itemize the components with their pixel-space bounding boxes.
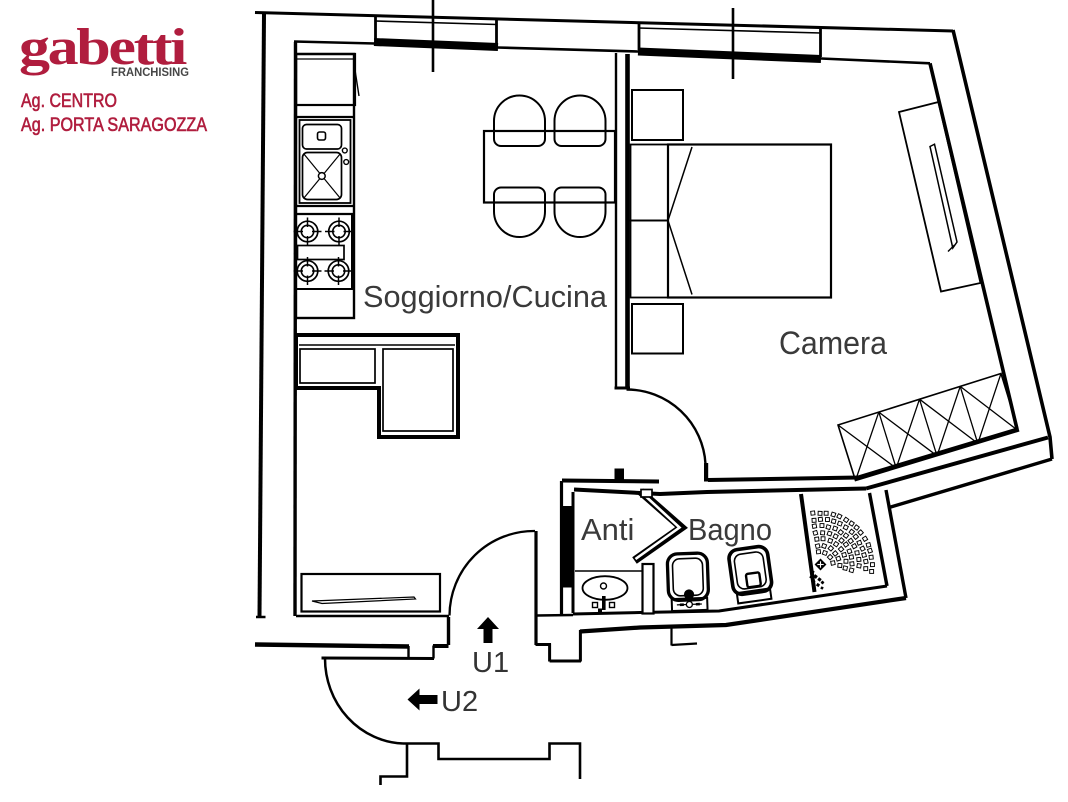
svg-text:U2: U2 [441, 686, 478, 718]
svg-text:Bagno: Bagno [688, 512, 772, 547]
svg-text:Ag. PORTA SARAGOZZA: Ag. PORTA SARAGOZZA [21, 115, 207, 136]
svg-text:Ag. CENTRO: Ag. CENTRO [21, 91, 117, 112]
svg-text:Anti: Anti [581, 512, 634, 547]
svg-text:Camera: Camera [779, 325, 887, 361]
svg-text:Soggiorno/Cucina: Soggiorno/Cucina [363, 280, 607, 314]
svg-text:FRANCHISING: FRANCHISING [111, 65, 189, 79]
svg-text:U1: U1 [472, 647, 509, 679]
